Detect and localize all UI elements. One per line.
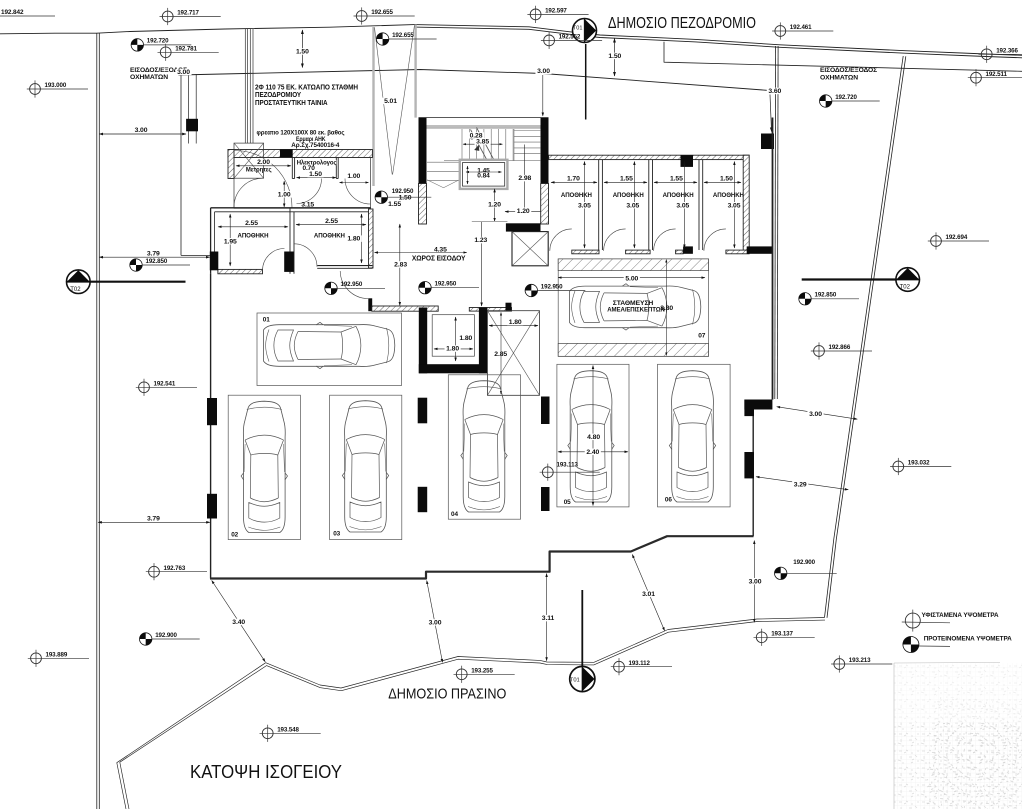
svg-text:1.80: 1.80 xyxy=(459,335,472,342)
svg-text:3.80: 3.80 xyxy=(660,305,673,312)
svg-text:1.50: 1.50 xyxy=(309,171,322,178)
svg-text:192.950: 192.950 xyxy=(435,281,457,288)
svg-text:3.00: 3.00 xyxy=(749,578,762,585)
svg-text:2.40: 2.40 xyxy=(586,449,599,456)
svg-text:192.900: 192.900 xyxy=(155,632,177,639)
svg-text:1.80: 1.80 xyxy=(509,319,522,326)
svg-text:2.83: 2.83 xyxy=(394,262,407,269)
svg-text:3.40: 3.40 xyxy=(232,619,245,626)
svg-text:0.84: 0.84 xyxy=(477,172,490,179)
svg-text:ΧΩΡΟΣ ΕΙΣΟΔΟΥ: ΧΩΡΟΣ ΕΙΣΟΔΟΥ xyxy=(412,254,466,263)
svg-text:ΑΠΟΘΗΚΗ: ΑΠΟΘΗΚΗ xyxy=(663,192,694,199)
svg-text:ΑΠΟΘΗΚΗ: ΑΠΟΘΗΚΗ xyxy=(713,192,744,199)
svg-text:192.866: 192.866 xyxy=(829,344,851,351)
svg-text:192.720: 192.720 xyxy=(835,94,857,101)
svg-text:193.548: 193.548 xyxy=(277,727,299,734)
svg-text:1.50: 1.50 xyxy=(608,53,621,60)
svg-text:192.950: 192.950 xyxy=(341,281,363,288)
svg-text:3.79: 3.79 xyxy=(147,516,160,523)
svg-text:192.781: 192.781 xyxy=(175,46,197,53)
svg-text:1.20: 1.20 xyxy=(488,201,501,208)
svg-text:ΑΠΟΘΗΚΗ: ΑΠΟΘΗΚΗ xyxy=(613,192,644,199)
svg-text:192.694: 192.694 xyxy=(946,234,968,241)
svg-text:1.80: 1.80 xyxy=(347,236,360,243)
svg-text:3.79: 3.79 xyxy=(147,250,160,257)
svg-text:ΑΠΟΘΗΚΗ: ΑΠΟΘΗΚΗ xyxy=(238,233,269,240)
svg-text:192.597: 192.597 xyxy=(545,8,567,15)
svg-text:193.113: 193.113 xyxy=(557,461,579,468)
svg-text:193.000: 193.000 xyxy=(45,82,67,89)
svg-text:3.00: 3.00 xyxy=(177,69,190,76)
svg-text:192.461: 192.461 xyxy=(790,24,812,31)
svg-text:3.05: 3.05 xyxy=(676,202,689,209)
svg-text:1.00: 1.00 xyxy=(278,191,291,198)
svg-text:1.50: 1.50 xyxy=(296,49,309,56)
svg-text:1.50: 1.50 xyxy=(720,176,733,183)
svg-text:193.213: 193.213 xyxy=(849,657,871,664)
svg-text:T01: T01 xyxy=(570,678,580,684)
svg-text:3.01: 3.01 xyxy=(642,591,655,598)
svg-text:Μετρητες: Μετρητες xyxy=(246,167,272,173)
svg-text:3.29: 3.29 xyxy=(794,482,807,489)
svg-text:193.137: 193.137 xyxy=(771,631,793,638)
svg-text:192.655: 192.655 xyxy=(371,9,393,16)
svg-text:192.720: 192.720 xyxy=(147,38,169,45)
svg-text:192.763: 192.763 xyxy=(164,565,186,572)
svg-text:192.842: 192.842 xyxy=(1,9,24,16)
svg-text:06: 06 xyxy=(665,497,672,504)
svg-text:192.950: 192.950 xyxy=(392,188,414,195)
svg-text:5.00: 5.00 xyxy=(625,275,638,282)
svg-text:T02: T02 xyxy=(70,287,81,293)
svg-text:5.01: 5.01 xyxy=(384,98,397,105)
svg-text:192.655: 192.655 xyxy=(392,32,414,39)
svg-text:3.05: 3.05 xyxy=(578,202,591,209)
svg-text:1.55: 1.55 xyxy=(620,176,633,183)
svg-text:04: 04 xyxy=(451,511,458,518)
svg-text:192.900: 192.900 xyxy=(793,559,815,566)
svg-text:193.889: 193.889 xyxy=(46,652,68,659)
svg-text:ΟΧΗΜΑΤΩΝ: ΟΧΗΜΑΤΩΝ xyxy=(820,75,859,82)
svg-text:3.00: 3.00 xyxy=(135,127,148,134)
svg-text:ΔΗΜΟΣΙΟ ΠΡΑΣΙΝΟ: ΔΗΜΟΣΙΟ ΠΡΑΣΙΝΟ xyxy=(388,686,506,703)
svg-text:1.80: 1.80 xyxy=(446,346,459,353)
svg-text:ΠΡΟΣΤΑΤΕΥΤΙΚΗ ΤΑΙΝΙΑ: ΠΡΟΣΤΑΤΕΥΤΙΚΗ ΤΑΙΝΙΑ xyxy=(255,98,328,107)
svg-text:1.23: 1.23 xyxy=(474,237,487,244)
svg-text:192.717: 192.717 xyxy=(177,10,199,17)
svg-text:192.511: 192.511 xyxy=(986,71,1008,78)
svg-text:192.850: 192.850 xyxy=(815,292,837,299)
svg-text:2.55: 2.55 xyxy=(245,220,258,227)
svg-text:1.20: 1.20 xyxy=(517,208,530,215)
svg-text:192.850: 192.850 xyxy=(146,258,168,265)
svg-text:3.11: 3.11 xyxy=(542,615,555,622)
svg-text:3.85: 3.85 xyxy=(476,138,489,145)
svg-text:02: 02 xyxy=(231,532,238,539)
svg-text:193.112: 193.112 xyxy=(629,660,651,667)
svg-text:192.950: 192.950 xyxy=(541,283,563,290)
svg-text:3.00: 3.00 xyxy=(809,411,822,418)
svg-text:1.55: 1.55 xyxy=(670,176,683,183)
svg-text:4.80: 4.80 xyxy=(587,434,600,441)
svg-text:3.05: 3.05 xyxy=(626,202,639,209)
svg-text:T01: T01 xyxy=(573,26,583,32)
svg-text:05: 05 xyxy=(564,499,571,506)
svg-text:1.00: 1.00 xyxy=(347,173,360,180)
svg-text:192.552: 192.552 xyxy=(559,34,581,41)
svg-text:T02: T02 xyxy=(900,285,911,291)
svg-text:1.70: 1.70 xyxy=(567,176,580,183)
svg-text:2.98: 2.98 xyxy=(518,175,531,182)
svg-text:3.00: 3.00 xyxy=(429,620,442,627)
svg-text:ΚΑΤΟΨΗ ΙΣΟΓΕΙΟΥ: ΚΑΤΟΨΗ ΙΣΟΓΕΙΟΥ xyxy=(190,762,342,782)
svg-text:Αρ.Σχ.7540016-4: Αρ.Σχ.7540016-4 xyxy=(291,142,339,149)
svg-text:1.95: 1.95 xyxy=(224,238,237,245)
svg-text:192.366: 192.366 xyxy=(996,48,1018,55)
svg-text:3.00: 3.00 xyxy=(537,68,550,75)
svg-text:ΕΙΣΟΔΟΣ/ΕΞΟΔΟΣ: ΕΙΣΟΔΟΣ/ΕΞΟΔΟΣ xyxy=(820,67,877,74)
svg-text:2.55: 2.55 xyxy=(325,218,338,225)
svg-text:3.05: 3.05 xyxy=(728,202,741,209)
svg-text:193.032: 193.032 xyxy=(908,460,930,467)
svg-text:ΟΧΗΜΑΤΩΝ: ΟΧΗΜΑΤΩΝ xyxy=(130,74,169,81)
svg-text:03: 03 xyxy=(333,531,340,538)
svg-text:ΑΠΟΘΗΚΗ: ΑΠΟΘΗΚΗ xyxy=(314,233,345,240)
svg-text:07: 07 xyxy=(698,332,706,339)
svg-text:1.55: 1.55 xyxy=(388,201,401,208)
svg-text:3.60: 3.60 xyxy=(768,88,781,95)
svg-text:ΥΦΙΣΤΑΜΕΝΑ ΥΨΟΜΕΤΡΑ: ΥΦΙΣΤΑΜΕΝΑ ΥΨΟΜΕΤΡΑ xyxy=(922,612,999,619)
svg-text:ΠΡΟΤΕΙΝΟΜΕΝΑ ΥΨΟΜΕΤΡΑ: ΠΡΟΤΕΙΝΟΜΕΝΑ ΥΨΟΜΕΤΡΑ xyxy=(924,635,1012,642)
svg-text:192.541: 192.541 xyxy=(154,381,176,388)
svg-text:01: 01 xyxy=(263,317,270,324)
svg-text:193.255: 193.255 xyxy=(471,668,493,675)
svg-text:2.00: 2.00 xyxy=(257,159,270,166)
svg-text:ΑΠΟΘΗΚΗ: ΑΠΟΘΗΚΗ xyxy=(561,192,592,199)
svg-text:ΔΗΜΟΣΙΟ ΠΕΖΟΔΡΟΜΙΟ: ΔΗΜΟΣΙΟ ΠΕΖΟΔΡΟΜΙΟ xyxy=(608,15,756,32)
svg-text:ΑΜΕΑ/ΕΠΙΣΚΕΠΤΩΝ: ΑΜΕΑ/ΕΠΙΣΚΕΠΤΩΝ xyxy=(607,307,665,314)
